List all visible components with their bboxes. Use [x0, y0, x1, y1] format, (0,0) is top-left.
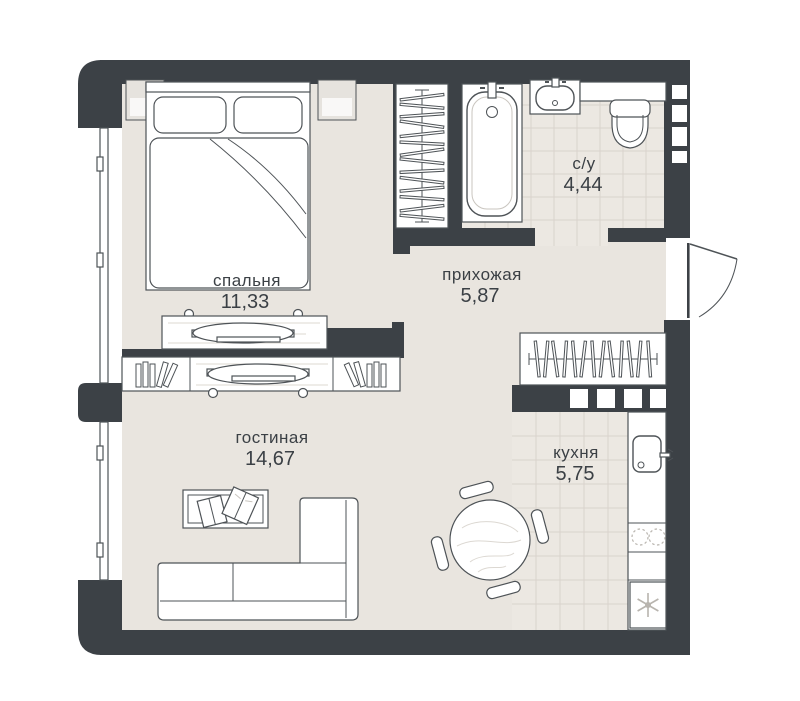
room-area: 11,33 — [221, 291, 270, 313]
room-area: 4,44 — [564, 174, 603, 196]
bedroom-living-wall-thick — [326, 328, 404, 358]
window-handle-icon — [97, 253, 103, 267]
door-swing-arc — [699, 259, 737, 317]
entrance-door-swing-icon — [687, 243, 737, 318]
bathroom-bottom-wall — [393, 228, 535, 246]
hall-wardrobe-hangers-icon — [520, 333, 666, 385]
toilet-icon — [610, 100, 650, 148]
niche — [650, 389, 666, 408]
sink-faucet-icon — [660, 453, 670, 457]
room-name: с/у — [572, 154, 595, 173]
niche — [570, 389, 588, 408]
window-handle-icon — [97, 543, 103, 557]
bedroom-window — [97, 128, 108, 383]
pillow-icon — [234, 97, 302, 133]
room-name: прихожая — [442, 265, 522, 284]
left-middle-wall-block — [78, 383, 122, 422]
living-room-window — [97, 422, 108, 580]
room-label-kitchen: кухня 5,75 — [553, 443, 599, 485]
room-name: кухня — [553, 443, 599, 462]
nightstand-right — [318, 80, 356, 120]
room-area: 5,75 — [556, 463, 595, 485]
coffee-table-icon — [183, 487, 268, 528]
room-name: гостиная — [235, 428, 308, 447]
washbasin-icon — [530, 78, 580, 114]
bathtub-icon — [462, 82, 522, 222]
shaft-cell — [672, 105, 687, 122]
shaft-cell — [672, 151, 687, 163]
tv-console-living — [122, 357, 400, 398]
room-area: 5,87 — [461, 285, 500, 307]
tv-console-bedroom — [162, 310, 327, 350]
bathroom-door-side-wall — [608, 228, 666, 242]
niche — [624, 389, 642, 408]
shaft-cell — [672, 85, 687, 99]
right-wall-lower — [664, 320, 690, 655]
fridge-snowflake-icon — [630, 582, 666, 628]
shaft-cell — [672, 127, 687, 146]
window-handle-icon — [97, 446, 103, 460]
wardrobe-hangers-icon — [396, 84, 448, 228]
blanket — [150, 138, 308, 288]
top-wall — [100, 60, 690, 84]
kitchen-partition-wall — [512, 385, 666, 412]
basin-faucet-icon — [552, 78, 559, 87]
niche — [597, 389, 615, 408]
pillow-icon — [154, 97, 226, 133]
room-name: спальня — [213, 271, 281, 290]
floor-plan: спальня 11,33 прихожая 5,87 с/у 4,44 гос… — [0, 0, 800, 701]
bathroom-counter — [580, 82, 666, 101]
door-leaf — [690, 244, 737, 259]
wardrobe-bathroom-wall — [448, 84, 462, 228]
bedroom-door-jamb-upper — [393, 228, 410, 254]
bed-icon — [146, 82, 310, 290]
door-threshold — [687, 243, 690, 318]
window-handle-icon — [97, 157, 103, 171]
bottom-wall — [100, 630, 690, 655]
tub-faucet-icon — [488, 82, 496, 98]
top-left-wall-block — [78, 60, 122, 128]
bathroom-doorway-tile — [535, 228, 608, 246]
room-area: 14,67 — [245, 448, 295, 470]
headboard — [146, 82, 310, 92]
